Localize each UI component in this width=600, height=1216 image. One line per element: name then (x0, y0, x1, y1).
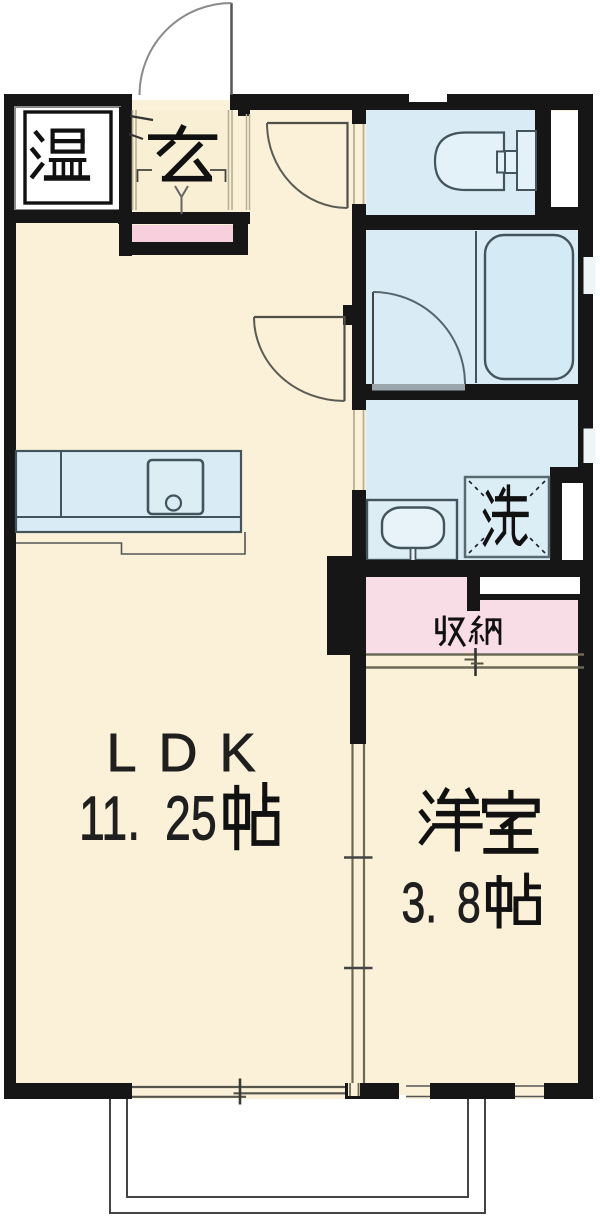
svg-text:LDK: LDK (107, 723, 278, 783)
svg-text:25: 25 (165, 783, 217, 853)
svg-text:11.: 11. (79, 783, 140, 853)
svg-text:3.: 3. (402, 870, 438, 934)
svg-text:8: 8 (457, 870, 481, 934)
